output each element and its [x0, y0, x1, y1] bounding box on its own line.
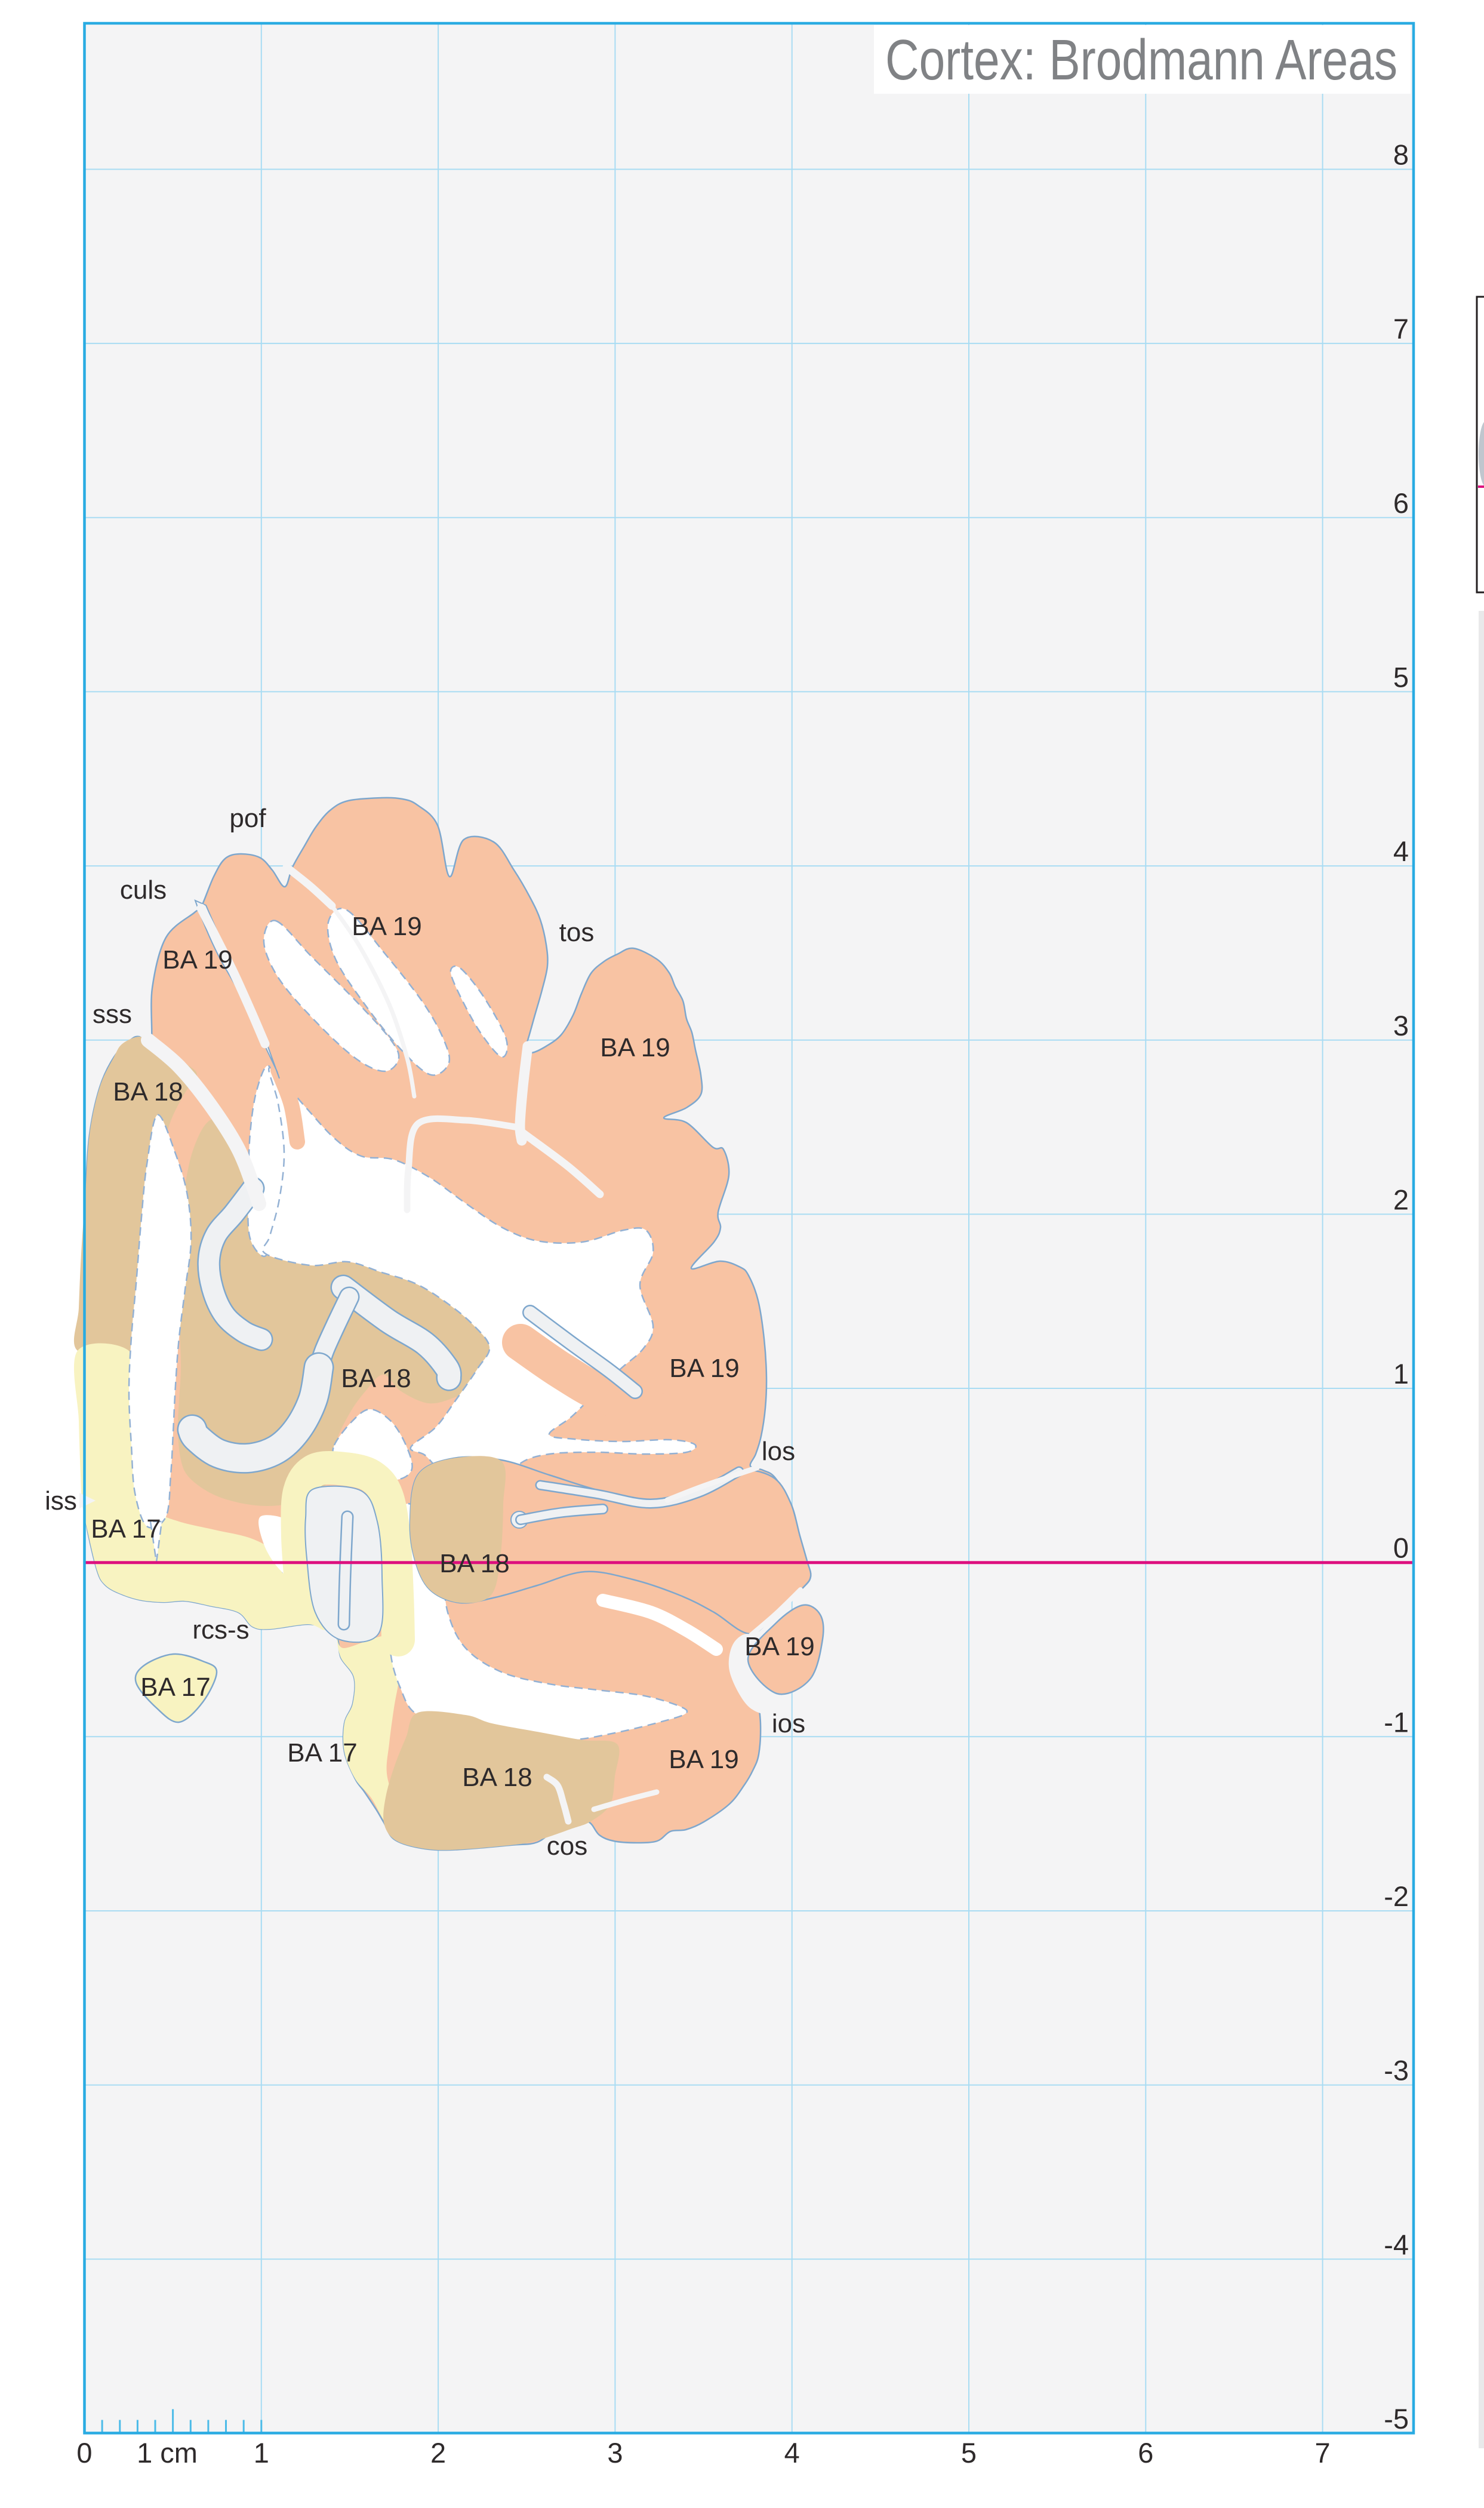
- svg-text:ios: ios: [772, 1709, 805, 1738]
- svg-text:5: 5: [1393, 661, 1409, 693]
- svg-text:BA 18: BA 18: [113, 1077, 183, 1107]
- svg-text:tos: tos: [559, 918, 595, 947]
- svg-text:0: 0: [1393, 1532, 1409, 1564]
- svg-text:1: 1: [1393, 1358, 1409, 1390]
- svg-text:BA 19: BA 19: [352, 912, 421, 941]
- svg-text:BA 19: BA 19: [669, 1745, 738, 1774]
- svg-text:8: 8: [1393, 139, 1409, 171]
- svg-text:BA 18: BA 18: [462, 1763, 532, 1792]
- svg-text:culs: culs: [120, 875, 167, 905]
- svg-text:BA 18: BA 18: [439, 1549, 509, 1578]
- svg-text:BA 18: BA 18: [341, 1364, 411, 1393]
- svg-text:iss: iss: [45, 1486, 77, 1516]
- svg-text:0: 0: [76, 2437, 92, 2469]
- svg-text:2: 2: [430, 2437, 446, 2469]
- svg-text:sss: sss: [93, 1000, 132, 1029]
- svg-text:-4: -4: [1384, 2229, 1409, 2260]
- svg-text:BA 19: BA 19: [600, 1033, 670, 1062]
- svg-text:BA 19: BA 19: [669, 1354, 739, 1383]
- svg-text:4: 4: [784, 2437, 800, 2469]
- svg-text:4: 4: [1393, 835, 1409, 867]
- svg-text:5: 5: [961, 2437, 977, 2469]
- svg-text:6: 6: [1393, 487, 1409, 519]
- svg-text:BA 17: BA 17: [140, 1673, 210, 1702]
- svg-text:BA 17: BA 17: [91, 1514, 161, 1544]
- svg-text:7: 7: [1315, 2437, 1331, 2469]
- svg-text:BA 19: BA 19: [162, 945, 232, 975]
- svg-text:3: 3: [607, 2437, 623, 2469]
- svg-text:cos: cos: [547, 1831, 587, 1861]
- svg-text:-5: -5: [1384, 2403, 1409, 2435]
- svg-text:-3: -3: [1384, 2055, 1409, 2086]
- svg-text:pof: pof: [229, 804, 266, 833]
- svg-text:-2: -2: [1384, 1880, 1409, 1912]
- svg-text:2: 2: [1393, 1184, 1409, 1215]
- svg-text:7: 7: [1393, 313, 1409, 345]
- svg-text:-1: -1: [1384, 1706, 1409, 1738]
- svg-text:BA 19: BA 19: [744, 1632, 814, 1661]
- svg-text:los: los: [762, 1437, 795, 1466]
- svg-text:3: 3: [1393, 1010, 1409, 1041]
- svg-text:1: 1: [254, 2437, 269, 2469]
- svg-text:6: 6: [1138, 2437, 1153, 2469]
- svg-text:1 cm: 1 cm: [137, 2437, 198, 2469]
- svg-text:Cortex: Brodmann Areas: Cortex: Brodmann Areas: [885, 28, 1397, 92]
- svg-text:rcs-s: rcs-s: [192, 1615, 249, 1645]
- svg-text:BA 17: BA 17: [287, 1738, 357, 1768]
